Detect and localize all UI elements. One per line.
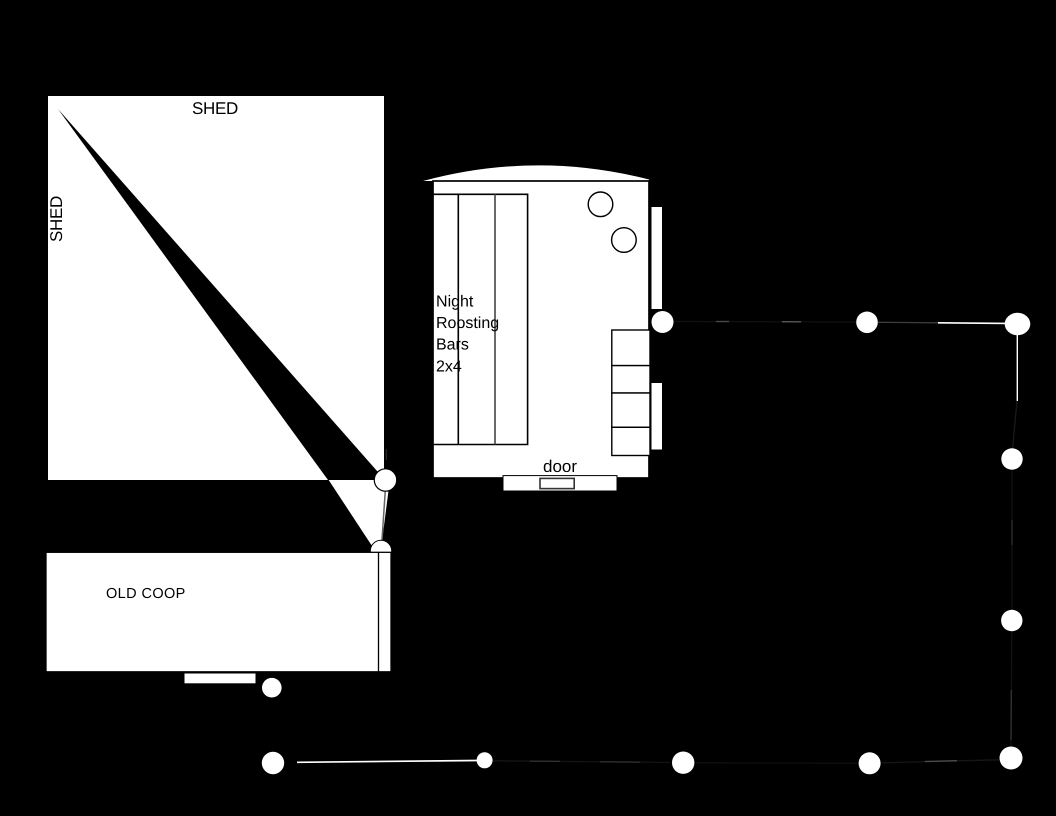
svg-text:SHED: SHED [47,196,66,242]
svg-text:2x4: 2x4 [436,359,462,376]
svg-text:Roosting: Roosting [436,315,499,332]
svg-text:Bars: Bars [436,337,469,354]
svg-text:OLD COOP: OLD COOP [106,586,186,602]
svg-text:door: door [543,457,577,476]
svg-text:SHED: SHED [192,99,238,118]
svg-text:Night: Night [436,294,474,311]
